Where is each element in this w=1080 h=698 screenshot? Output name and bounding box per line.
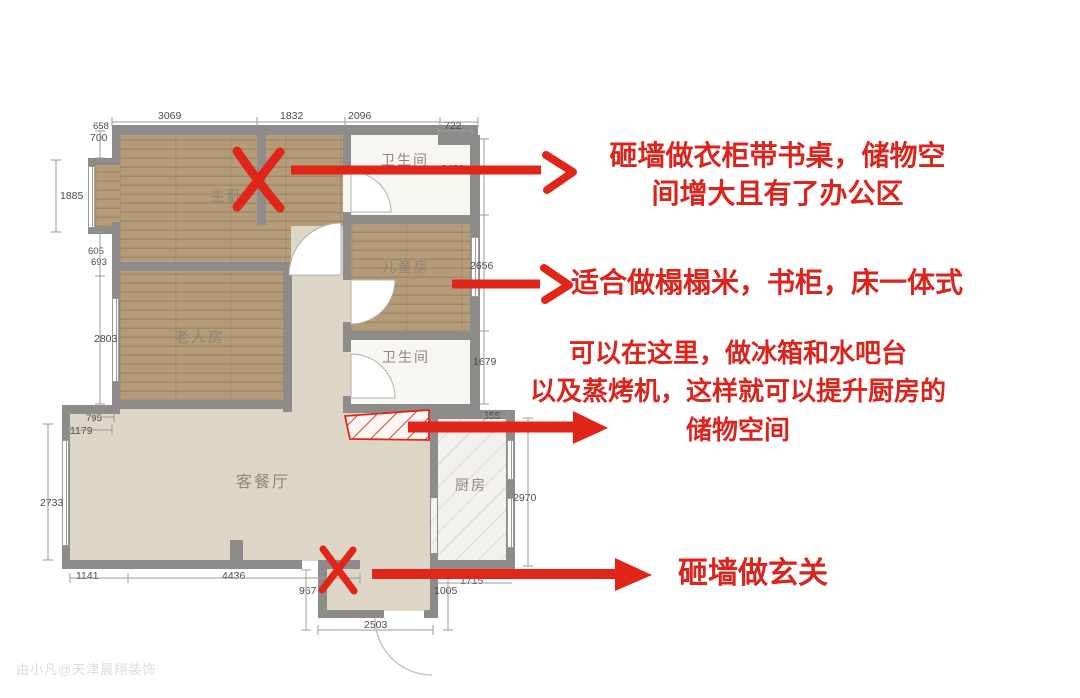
dim-label: 1141 bbox=[76, 570, 99, 582]
watermark: 由小凡@天津晨翔装饰 bbox=[16, 659, 156, 678]
wall-segment bbox=[62, 560, 302, 569]
room-bathroom-top bbox=[351, 135, 470, 217]
annotation-wardrobe: 砸墙做衣柜带书桌，储物空 间增大且有了办公区 bbox=[585, 137, 970, 213]
corridor bbox=[291, 226, 343, 416]
dim-label: 605 bbox=[88, 246, 104, 257]
dim-label: 2503 bbox=[364, 619, 387, 631]
room-master-bay bbox=[95, 165, 120, 227]
annotation-kitchenbar-line1: 可以在这里，做冰箱和水吧台 bbox=[520, 334, 956, 372]
annotation-wardrobe-line2: 间增大且有了办公区 bbox=[585, 175, 970, 213]
dim-label: 693 bbox=[91, 257, 107, 268]
window bbox=[507, 498, 514, 548]
dim-label: 4436 bbox=[222, 570, 245, 582]
annotation-kitchenbar-line3: 储物空间 bbox=[520, 411, 956, 449]
room-kids bbox=[351, 224, 470, 332]
door-gap bbox=[431, 498, 437, 553]
wall-pier bbox=[230, 540, 243, 569]
dim-label: 1179 bbox=[70, 425, 93, 437]
room-label-bath-top: 卫生间 bbox=[381, 150, 429, 170]
dim-label: 1885 bbox=[60, 190, 83, 202]
wall-segment bbox=[112, 262, 292, 271]
wall-segment bbox=[343, 331, 478, 340]
wall-segment bbox=[283, 267, 292, 412]
floorplan-annotation-image: 主卧 卫生间 儿童房 卫生间 老人房 客餐厅 厨房 658 700 3069 1… bbox=[0, 0, 1080, 698]
wall-segment bbox=[112, 125, 478, 135]
wall-segment bbox=[112, 222, 120, 280]
room-label-kids: 儿童房 bbox=[382, 257, 430, 277]
wall-demolish-master bbox=[257, 133, 266, 225]
door-gap bbox=[343, 172, 351, 212]
wall-segment bbox=[343, 215, 478, 224]
annotation-entry: 砸墙做玄关 bbox=[678, 554, 828, 594]
room-label-master: 主卧 bbox=[210, 185, 244, 206]
dim-label: 3069 bbox=[158, 110, 181, 122]
dim-label: 1679 bbox=[473, 356, 496, 368]
dim-label: 722 bbox=[444, 120, 462, 132]
dim-label: 2656 bbox=[470, 260, 493, 272]
dim-label: 795 bbox=[86, 413, 102, 424]
dim-label: 1832 bbox=[280, 110, 303, 122]
wall-segment bbox=[430, 560, 515, 569]
dim-label: 658 bbox=[93, 121, 109, 132]
dim-label: 1005 bbox=[434, 585, 457, 597]
dim-label: 700 bbox=[90, 132, 108, 144]
corridor-to-kitchen bbox=[343, 412, 430, 432]
wall-segment bbox=[112, 400, 292, 409]
dim-label: 967 bbox=[299, 585, 317, 597]
window bbox=[88, 166, 95, 228]
window bbox=[62, 440, 69, 546]
dim-label: 2420 bbox=[441, 163, 464, 175]
room-label-bath-mid: 卫生间 bbox=[382, 347, 430, 367]
dim-label: 2803 bbox=[94, 333, 117, 345]
annotation-kitchenbar-line2: 以及蒸烤机，这样就可以提升厨房的 bbox=[520, 372, 956, 410]
room-label-kitchen: 厨房 bbox=[455, 475, 487, 495]
dim-label: 2970 bbox=[513, 492, 536, 504]
window bbox=[507, 440, 514, 480]
room-label-living: 客餐厅 bbox=[236, 468, 290, 492]
door-gap bbox=[343, 280, 351, 322]
door-gap bbox=[343, 352, 351, 396]
annotation-tatami: 适合做榻榻米，书柜，床一体式 bbox=[571, 265, 963, 302]
annotation-wardrobe-line1: 砸墙做衣柜带书桌，储物空 bbox=[585, 137, 970, 175]
dim-label: 555 bbox=[483, 410, 501, 422]
room-label-elder: 老人房 bbox=[174, 326, 225, 347]
wall-segment bbox=[430, 410, 515, 419]
dim-label: 2096 bbox=[348, 110, 371, 122]
dim-label: 1715 bbox=[460, 575, 483, 587]
annotation-kitchenbar: 可以在这里，做冰箱和水吧台 以及蒸烤机，这样就可以提升厨房的 储物空间 bbox=[520, 334, 956, 449]
wall-segment bbox=[318, 610, 384, 618]
dim-label: 2733 bbox=[40, 497, 63, 509]
